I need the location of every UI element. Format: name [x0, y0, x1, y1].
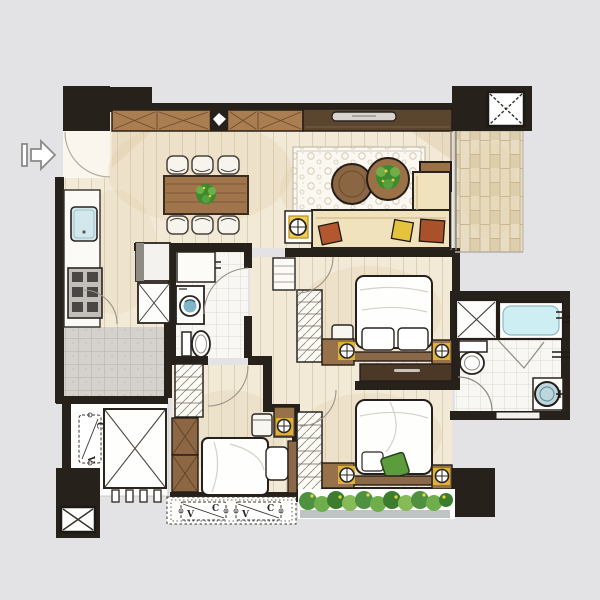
wall-bath-top — [168, 243, 252, 252]
floor-plan: V C V C C V — [0, 0, 600, 600]
headboard — [353, 476, 435, 485]
nightstand-right — [432, 340, 452, 365]
nightstand-left — [322, 339, 355, 365]
wall-bottom-right-block — [452, 468, 495, 517]
wall-left-lower — [62, 403, 71, 468]
shaft-x-box-master-bath — [456, 300, 497, 339]
sofa-chaise — [413, 172, 450, 214]
wall-corridor-divider — [263, 358, 272, 405]
toilet-icon — [459, 341, 487, 374]
wall-bedroom2-master — [355, 381, 460, 390]
wall-top-left-block — [63, 86, 110, 131]
dining-table — [164, 176, 248, 214]
nightstand — [274, 407, 295, 437]
washing-machine-icon — [176, 286, 204, 324]
column-x-marker-bottom-left — [61, 507, 95, 532]
double-bed — [353, 400, 435, 485]
living-room — [285, 147, 451, 248]
ac-label-c: C — [267, 504, 274, 514]
entry-arrow-icon — [22, 141, 55, 169]
dining-area — [164, 156, 248, 234]
ac-unit-horizontal-1: V C — [179, 502, 228, 520]
top-cabinet-row — [112, 110, 303, 131]
wall-bath-right-upper — [244, 252, 252, 268]
wardrobe — [297, 412, 322, 490]
shaft-x-box-platform — [104, 409, 166, 502]
headboard — [288, 441, 297, 493]
double-bed — [353, 276, 435, 361]
ac-label-v: V — [186, 510, 195, 520]
wardrobe-shelves — [175, 364, 203, 417]
dresser — [360, 364, 452, 381]
ac-platform: V C V C — [167, 497, 296, 524]
tv-console — [303, 109, 452, 131]
nightstand-right — [432, 465, 452, 489]
tall-cabinet — [138, 283, 170, 323]
ac-label-c: C — [212, 504, 219, 514]
wall-living-bedroom2 — [285, 248, 460, 257]
refrigerator — [136, 243, 170, 281]
nightstand-left — [322, 463, 355, 488]
chair — [252, 414, 272, 436]
throw-pillow-yellow — [391, 220, 413, 242]
pillow — [266, 447, 288, 480]
throw-pillow-rust — [318, 222, 342, 245]
wall-bath-right-lower — [244, 316, 252, 358]
wall-left — [55, 177, 64, 403]
round-basin-icon — [533, 378, 564, 410]
wall-top-step — [108, 87, 152, 112]
vanity — [177, 252, 221, 282]
utility-tile-floor — [64, 327, 168, 398]
ac-label-v: V — [85, 455, 95, 464]
toilet-icon — [182, 331, 210, 357]
pillow — [362, 452, 383, 471]
bathtub-icon — [499, 302, 566, 339]
plant-icon — [376, 165, 400, 189]
throw-pillow-rust-2 — [419, 219, 444, 243]
ac-label-c: C — [94, 422, 104, 429]
floor-lamp-table — [285, 211, 312, 243]
wardrobe-cabinets — [172, 418, 198, 492]
ac-unit-vertical: C V — [79, 413, 104, 465]
wall-utility-bottom — [56, 396, 168, 404]
pillow — [398, 328, 428, 350]
plant-icon — [196, 184, 216, 204]
headboard — [353, 352, 435, 361]
ac-unit-horizontal-2: V C — [234, 502, 283, 520]
sink-icon — [71, 207, 97, 241]
pillow — [362, 328, 394, 350]
column-x-marker-top-right — [488, 92, 524, 126]
ac-label-v: V — [241, 510, 250, 520]
flower-planter — [298, 489, 455, 519]
wardrobe — [297, 290, 322, 362]
floor-plan-drawing: V C V C C V — [0, 0, 600, 600]
